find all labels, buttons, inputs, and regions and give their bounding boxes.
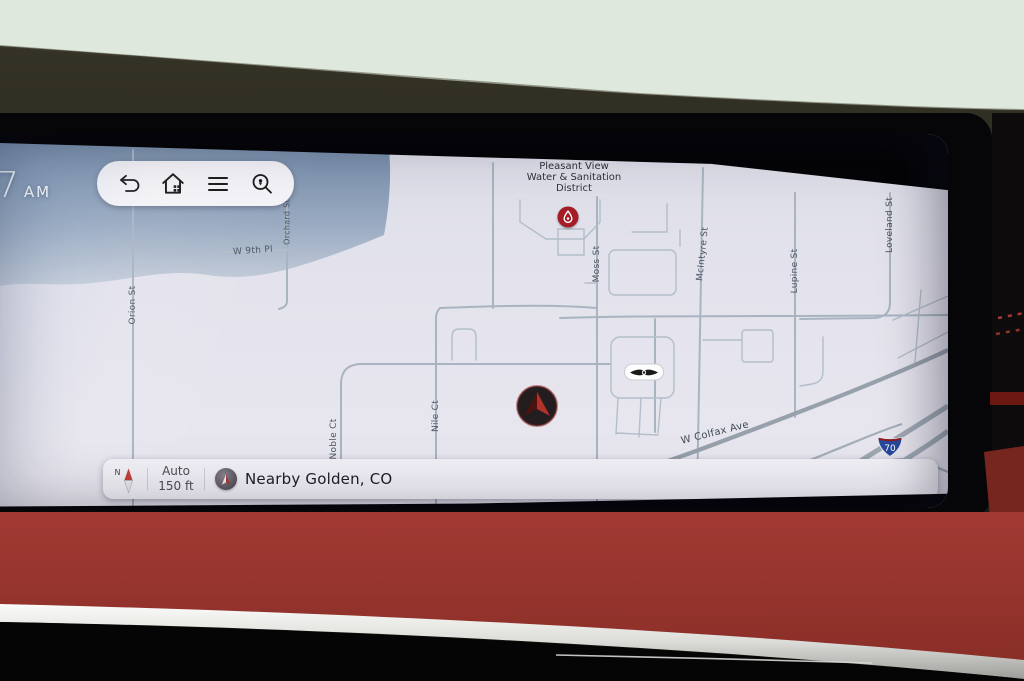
navigation-arrow-icon	[515, 384, 559, 428]
street-label-moss-st: Moss St	[592, 246, 602, 283]
map-scale-label: 150 ft	[148, 479, 204, 494]
clock: 7 AM	[0, 168, 51, 204]
street-label-loveland-st: Loveland St	[885, 197, 895, 253]
dashboard-photo: Pleasant View Water & Sanitation Distric…	[0, 0, 1024, 681]
home-button[interactable]	[156, 167, 190, 201]
divider	[204, 468, 205, 490]
zoom-mode-label: Auto	[148, 464, 204, 479]
current-location-icon	[215, 468, 237, 490]
compass-button[interactable]: N	[103, 464, 147, 494]
street-label-orion-st: Orion St	[128, 286, 138, 325]
search-location-icon	[250, 172, 274, 196]
back-icon	[116, 173, 142, 195]
street-label-noble-ct: Noble Ct	[329, 418, 339, 459]
compass-north-label: N	[115, 468, 121, 477]
street-label-lupine-st: Lupine St	[790, 249, 800, 294]
compass-needle-icon	[122, 467, 135, 494]
home-icon	[160, 171, 186, 197]
current-location-label: Nearby Golden, CO	[245, 470, 392, 488]
water-utility-pin-icon[interactable]	[558, 207, 579, 228]
svg-text:70: 70	[884, 444, 896, 454]
clock-meridiem: AM	[24, 183, 51, 201]
genesis-wings-icon	[629, 367, 659, 377]
zoom-scale-control[interactable]: Auto 150 ft	[148, 464, 204, 494]
map-canvas[interactable]: Pleasant View Water & Sanitation Distric…	[0, 134, 948, 508]
poi-label-pleasant-view: Pleasant View Water & Sanitation Distric…	[527, 161, 622, 194]
vehicle-location-marker	[515, 384, 559, 432]
street-label-nile-ct: Nile Ct	[431, 400, 441, 432]
interstate-70-shield: 70	[877, 435, 903, 458]
back-button[interactable]	[112, 167, 146, 201]
menu-icon	[206, 174, 230, 194]
water-drop-icon	[563, 211, 574, 224]
search-button[interactable]	[245, 167, 279, 201]
clock-hour: 7	[0, 168, 19, 204]
dealer-poi-badge[interactable]	[624, 364, 664, 381]
menu-button[interactable]	[201, 167, 235, 201]
nav-status-bar: N Auto 150 ft Nearby Golden, CO	[103, 459, 938, 499]
street-label-orchard-st: Orchard St	[283, 199, 292, 245]
map-toolbar	[97, 161, 294, 206]
